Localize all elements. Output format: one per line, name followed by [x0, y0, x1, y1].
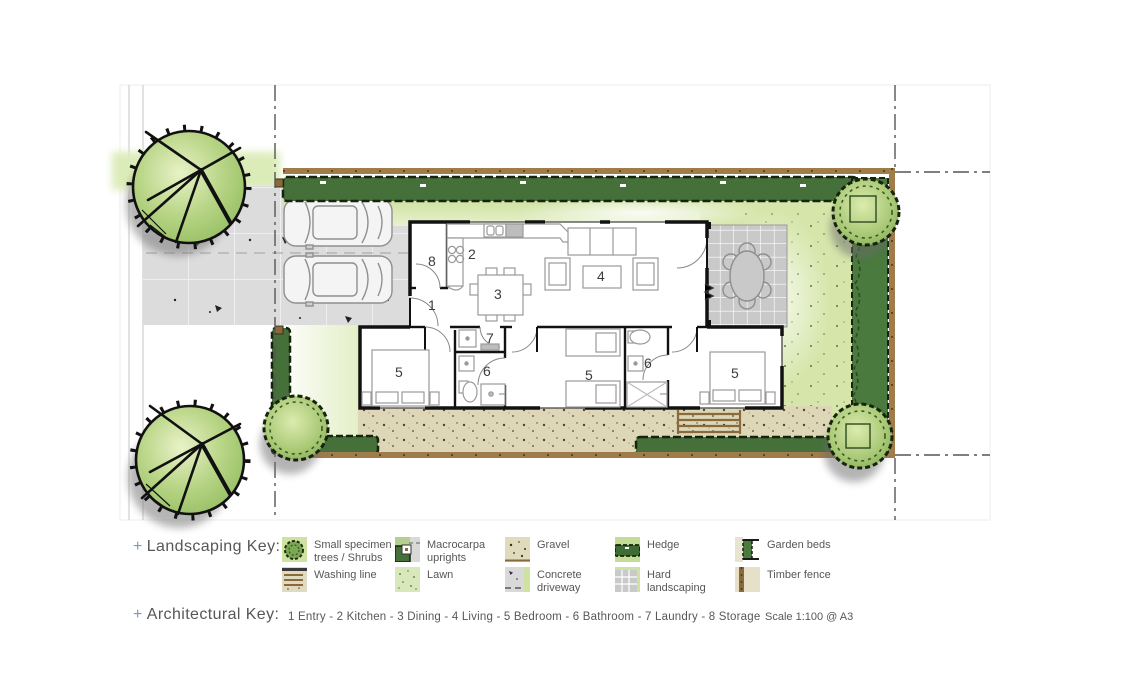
legend-item-gravel: Gravel [505, 537, 617, 562]
legend-item-hard-landscaping: Hard landscaping [615, 567, 727, 595]
small-specimen-trees-swatch-icon [282, 537, 307, 562]
hard-landscaping-patio [704, 222, 787, 327]
architectural-key-title: +Architectural Key: [133, 606, 279, 624]
architectural-key-items: 1 Entry - 2 Kitchen - 3 Dining - 4 Livin… [288, 611, 760, 623]
macrocarpa-post-2 [275, 326, 283, 334]
legend-item-lawn: Lawn [395, 567, 507, 592]
room-label-bedroom-right: 5 [731, 365, 739, 381]
shrub-bottom-right [824, 404, 892, 482]
room-label-bathroom-right: 6 [644, 355, 652, 371]
car-1 [284, 196, 392, 249]
fence-bottom [283, 452, 895, 458]
garden-beds-swatch-icon [735, 537, 760, 562]
timber-fence-swatch-icon [735, 567, 760, 592]
hard-landscaping-swatch-icon [615, 567, 640, 592]
room-label-bedroom-left: 5 [395, 364, 403, 380]
legend-item-garden-beds: Garden beds [735, 537, 847, 562]
legend-item-timber-fence: Timber fence [735, 567, 847, 592]
landscaping-key-plus: + [133, 538, 143, 555]
architectural-key-plus: + [133, 606, 143, 623]
street-trees [126, 128, 248, 528]
washing-line-swatch-icon [282, 567, 307, 592]
legend-item-small-specimen-trees: Small specimen trees / Shrubs [282, 537, 394, 565]
macrocarpa-post-1 [275, 179, 283, 187]
street-tree-2 [128, 403, 247, 528]
room-label-storage: 8 [428, 253, 436, 269]
legend-item-macrocarpa-uprights: Macrocarpa uprights [395, 537, 507, 565]
shrub-hedge-corner [260, 396, 328, 474]
car-2 [284, 253, 392, 306]
scale-note: Scale 1:100 @ A3 [765, 611, 853, 623]
hedge-top [283, 177, 857, 201]
room-label-bedroom-middle: 5 [585, 367, 593, 383]
gravel-swatch-icon [505, 537, 530, 562]
landscaping-key-title: +Landscaping Key: [133, 538, 280, 556]
concrete-driveway-swatch-icon [505, 567, 530, 592]
legend-item-washing-line: Washing line [282, 567, 394, 592]
site-plan-page: 8 2 3 4 1 7 6 5 5 6 5 [0, 0, 1130, 675]
legend-item-concrete-driveway: Concrete driveway [505, 567, 617, 595]
room-label-bathroom-left: 6 [483, 363, 491, 379]
macrocarpa-uprights-swatch-icon [395, 537, 420, 562]
fence-top [283, 168, 895, 174]
legend-item-hedge: Hedge [615, 537, 727, 562]
room-label-laundry: 7 [486, 330, 494, 346]
lawn-swatch-icon [395, 567, 420, 592]
room-label-kitchen: 2 [468, 246, 476, 262]
hedge-swatch-icon [615, 537, 640, 562]
room-label-living: 4 [597, 268, 605, 284]
room-label-entry: 1 [428, 297, 436, 313]
room-label-dining: 3 [494, 286, 502, 302]
